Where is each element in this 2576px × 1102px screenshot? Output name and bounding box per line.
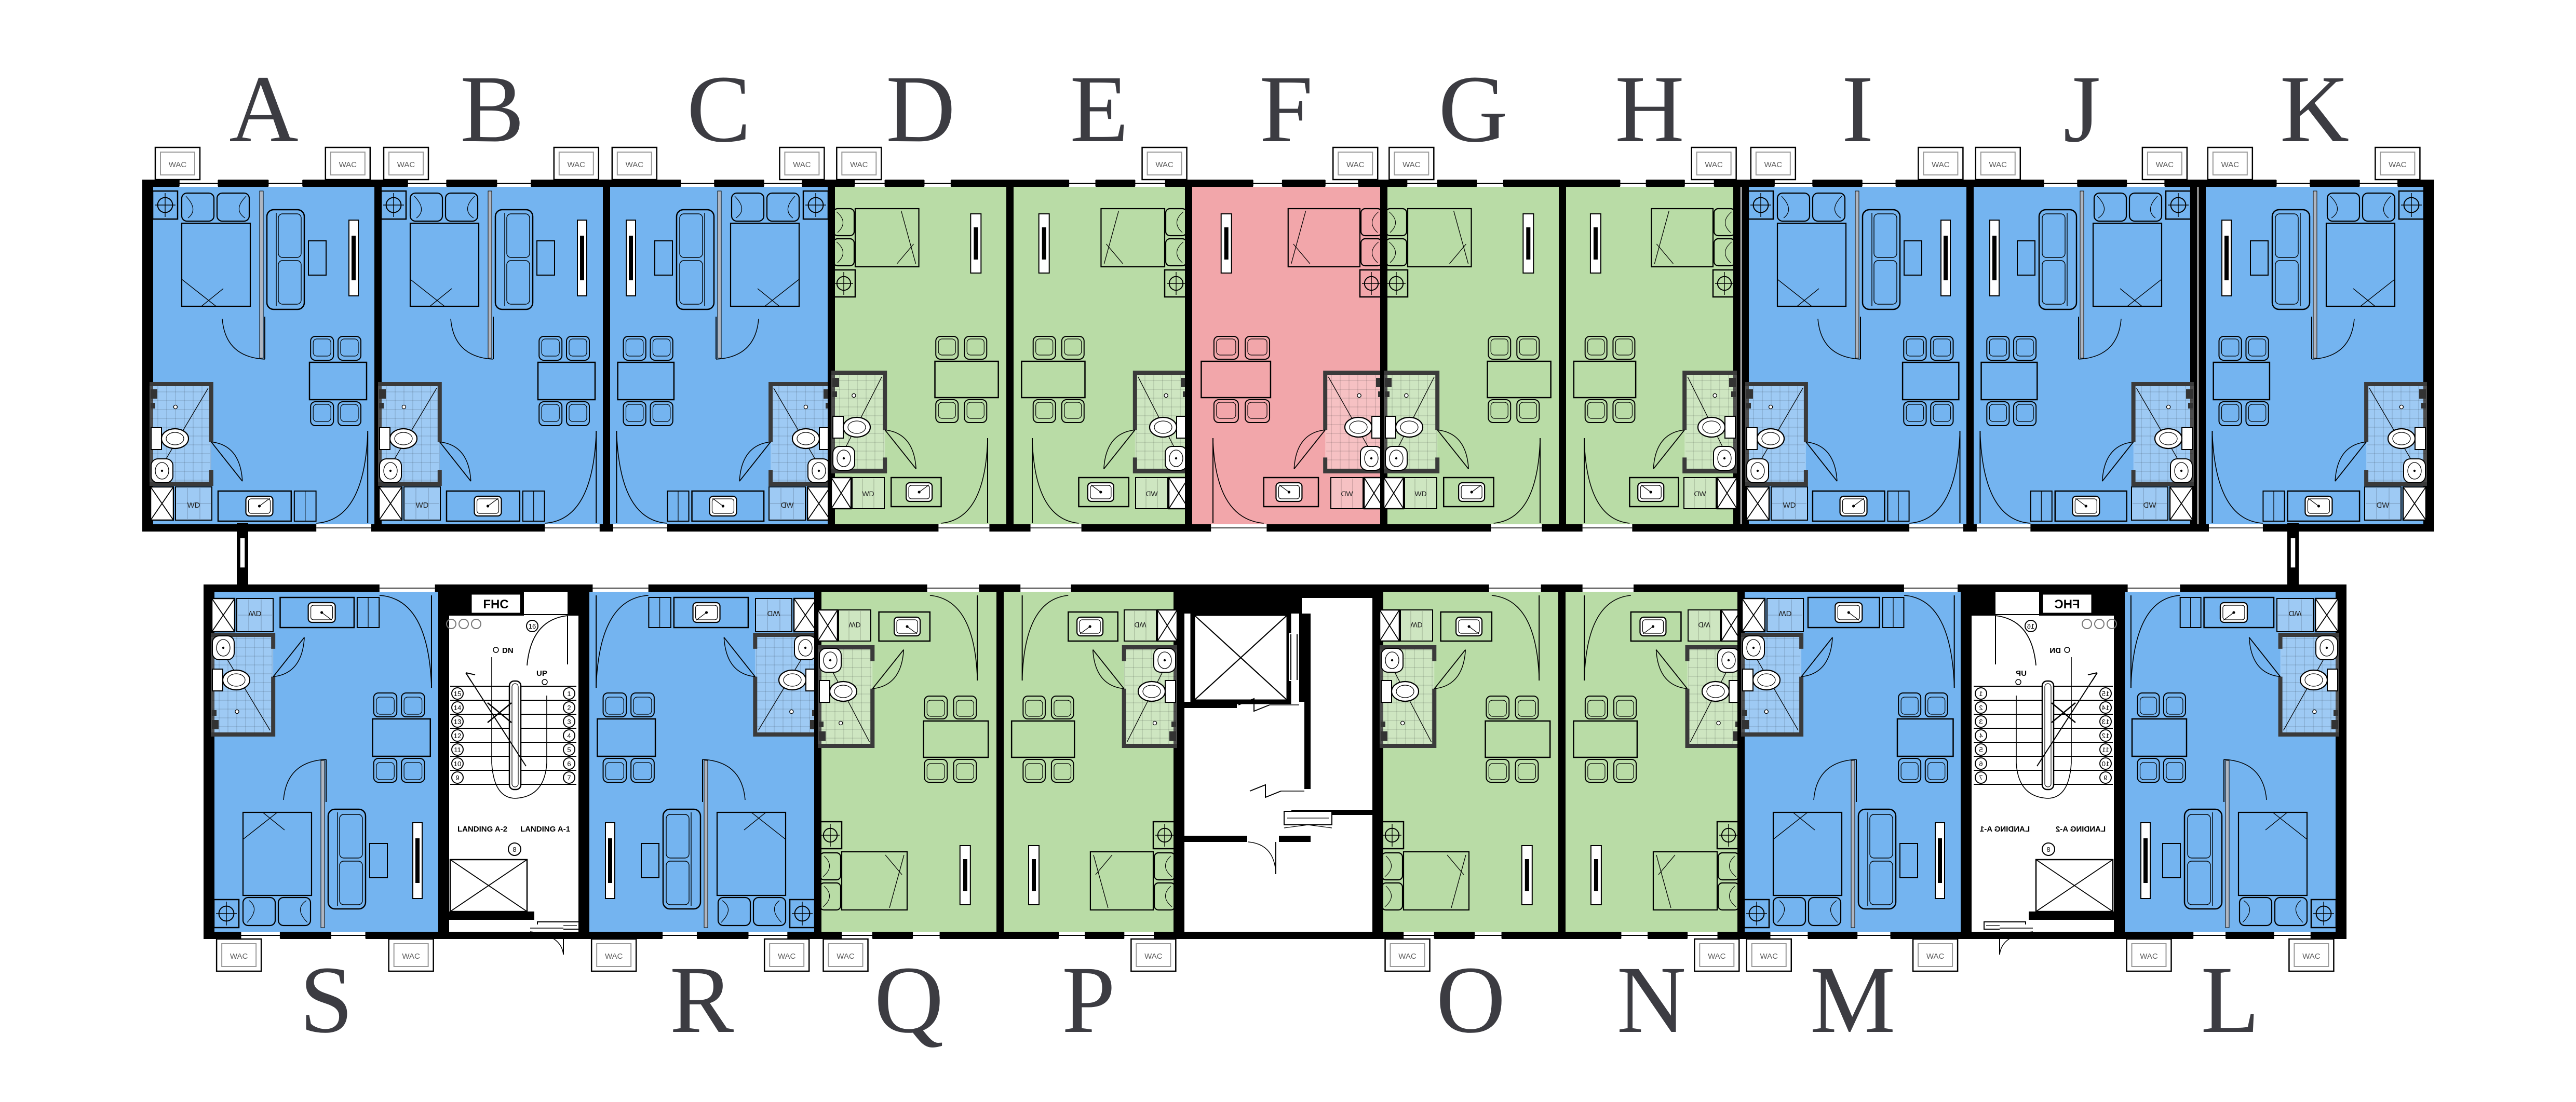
stair-number: 1 [567, 690, 571, 698]
stair-number: 10 [454, 760, 461, 768]
wac-label: WAC [1989, 160, 2007, 169]
stair-number: 7 [567, 774, 571, 782]
wac-box-J: WAC [1976, 147, 2020, 180]
wac-label: WAC [626, 160, 644, 169]
stair-number: 13 [2102, 718, 2109, 726]
unit-letter-P: P [1062, 947, 1115, 1053]
fhc-label: FHC [2054, 597, 2080, 611]
wd-label: WD [1783, 501, 1796, 510]
unit-J: WD [1966, 180, 2197, 532]
wac-label: WAC [2302, 952, 2321, 961]
wac-label: WAC [1144, 952, 1163, 961]
wac-box-G: WAC [1389, 147, 1434, 180]
stair-number: 8 [512, 846, 516, 853]
stair-number: 15 [454, 690, 461, 698]
wac-box-D: WAC [837, 147, 881, 180]
unit-C: WD [603, 180, 835, 532]
wd-label: WD [2143, 501, 2156, 510]
stair-number: 9 [2103, 774, 2107, 782]
fhc-label: FHC [483, 597, 508, 611]
unit-D: WD [828, 180, 1014, 532]
wac-box-B: WAC [384, 147, 428, 180]
floor-plan: WDWDWDWDWDWDWDWDWDWDWDWDWDWDWDWDWDWDWDFH… [0, 0, 2576, 1102]
stair-number: 5 [567, 746, 571, 754]
wd-label: WD [187, 501, 200, 510]
stair-number: 4 [567, 732, 571, 740]
wac-label: WAC [850, 160, 868, 169]
unit-letter-C: C [687, 56, 751, 162]
unit-N: WD [1558, 584, 1745, 939]
wac-label: WAC [837, 952, 855, 961]
wac-label: WAC [2156, 160, 2174, 169]
unit-G: WD [1380, 180, 1566, 532]
wd-label: WD [1134, 621, 1146, 629]
wd-label: WD [1410, 621, 1422, 629]
stair-number: 3 [1979, 718, 1982, 726]
unit-L: WD [2118, 584, 2343, 939]
wac-label: WAC [1926, 952, 1945, 961]
wac-label: WAC [1708, 952, 1726, 961]
unit-Q: WD [814, 584, 1004, 939]
wac-box-K: WAC [2375, 147, 2420, 180]
stair-number: 12 [454, 732, 461, 740]
wac-label: WAC [2389, 160, 2407, 169]
wd-label: WD [2376, 501, 2389, 510]
stair-number: 11 [454, 746, 461, 754]
unit-M: WD [1737, 584, 1968, 939]
stair-number: 8 [2046, 846, 2050, 853]
wac-box-R: WAC [591, 939, 636, 971]
wd-label: WD [1694, 489, 1706, 498]
unit-letter-K: K [2280, 56, 2350, 162]
wac-box-Q: WAC [824, 939, 868, 971]
wac-label: WAC [1760, 952, 1778, 961]
wac-label: WAC [605, 952, 623, 961]
plan-root: WDWDWDWDWDWDWDWDWDWDWDWDWDWDWDWDWDWDWDFH… [142, 56, 2434, 1053]
wac-box-C: WAC [612, 147, 657, 180]
unit-A: WD [146, 180, 382, 532]
stair-number: 3 [567, 718, 571, 726]
wac-box-S: WAC [389, 939, 434, 971]
wac-box-J: WAC [2142, 147, 2187, 180]
unit-letter-M: M [1810, 947, 1896, 1053]
up-label: UP [2016, 669, 2027, 678]
wd-label: WD [249, 609, 262, 618]
wac-label: WAC [402, 952, 420, 961]
stair-number: 4 [1979, 732, 1982, 740]
wac-box-P: WAC [1131, 939, 1176, 971]
wd-label: WD [416, 501, 429, 510]
dn-label: DN [2049, 646, 2061, 655]
wac-label: WAC [1398, 952, 1417, 961]
stair-number: 13 [454, 718, 461, 726]
stair-number: 6 [1979, 760, 1982, 768]
unit-letter-E: E [1070, 56, 1128, 162]
wd-label: WD [1698, 621, 1710, 629]
unit-letter-L: L [2201, 947, 2259, 1053]
wac-box-I: WAC [1751, 147, 1796, 180]
wac-box-A: WAC [326, 147, 370, 180]
dn-label: DN [502, 646, 514, 655]
stair-number: 9 [455, 774, 459, 782]
wac-label: WAC [339, 160, 357, 169]
wac-label: WAC [1932, 160, 1950, 169]
unit-letter-B: B [460, 56, 524, 162]
wac-box-M: WAC [1747, 939, 1791, 971]
wac-box-L: WAC [2289, 939, 2334, 971]
wac-label: WAC [397, 160, 415, 169]
wac-box-F: WAC [1333, 147, 1378, 180]
unit-letter-R: R [670, 947, 734, 1053]
wac-box-K: WAC [2208, 147, 2253, 180]
wac-label: WAC [2140, 952, 2158, 961]
wac-box-R: WAC [764, 939, 809, 971]
wac-label: WAC [568, 160, 586, 169]
wac-box-N: WAC [1694, 939, 1739, 971]
landing-label: LANDING A-1 [520, 825, 570, 834]
unit-letter-I: I [1842, 56, 1874, 162]
unit-R: WD [582, 584, 821, 939]
unit-letter-H: H [1615, 56, 1684, 162]
unit-K: WD [2199, 180, 2431, 532]
wac-label: WAC [1155, 160, 1174, 169]
wac-box-S: WAC [217, 939, 261, 971]
up-label: UP [536, 669, 547, 678]
unit-letter-G: G [1438, 56, 1508, 162]
stair-number: 2 [567, 704, 571, 712]
wac-label: WAC [778, 952, 796, 961]
wd-label: WD [862, 489, 874, 498]
wac-box-E: WAC [1142, 147, 1187, 180]
wac-box-L: WAC [2127, 939, 2172, 971]
wd-label: WD [767, 609, 780, 618]
wac-box-A: WAC [155, 147, 200, 180]
stair-number: 1 [1979, 690, 1982, 698]
wac-box-I: WAC [1918, 147, 1963, 180]
row-connector-right [2287, 523, 2299, 588]
wac-box-O: WAC [1385, 939, 1430, 971]
wd-label: WD [780, 501, 793, 510]
wac-label: WAC [793, 160, 811, 169]
unit-letter-S: S [300, 947, 353, 1053]
stair-number: 7 [1979, 774, 1982, 782]
wac-label: WAC [1764, 160, 1783, 169]
wac-box-H: WAC [1692, 147, 1736, 180]
wac-label: WAC [1705, 160, 1723, 169]
wac-label: WAC [1346, 160, 1365, 169]
stair-number: 16 [529, 622, 536, 630]
landing-label: LANDING A-2 [457, 825, 507, 834]
stair-number: 14 [2102, 704, 2109, 712]
landing-label: LANDING A-1 [1980, 825, 2030, 834]
unit-H: WD [1559, 180, 1741, 532]
unit-S: WD [207, 584, 446, 939]
wd-label: WD [1341, 489, 1353, 498]
wac-label: WAC [230, 952, 248, 961]
floor-plan-canvas: WDWDWDWDWDWDWDWDWDWDWDWDWDWDWDWDWDWDWDFH… [0, 0, 2576, 1102]
elevator-core [1177, 592, 1380, 932]
stair-number: 6 [567, 760, 571, 768]
unit-B: WD [374, 180, 610, 532]
unit-letter-N: N [1617, 947, 1687, 1053]
unit-letter-A: A [229, 56, 299, 162]
wac-box-C: WAC [779, 147, 824, 180]
stair-number: 11 [2102, 746, 2109, 754]
stair-number: 16 [2027, 622, 2034, 630]
wd-label: WD [848, 621, 860, 629]
unit-P: WD [996, 584, 1181, 939]
stair-core-right: FHCDNUP1514131211109123456716LANDING A-2… [1964, 592, 2121, 955]
stair-number: 14 [454, 704, 461, 712]
stair-number: 5 [1979, 746, 1982, 754]
stair-number: 12 [2102, 732, 2109, 740]
stair-number: 15 [2102, 690, 2109, 698]
stair-core-left: FHCDNUP1514131211109123456716LANDING A-2… [442, 592, 586, 955]
wd-label: WD [2288, 609, 2301, 618]
unit-letter-D: D [886, 56, 955, 162]
stair-number: 2 [1979, 704, 1982, 712]
landing-label: LANDING A-2 [2056, 825, 2106, 834]
wac-label: WAC [1402, 160, 1421, 169]
wd-label: WD [1145, 489, 1157, 498]
unit-letter-J: J [2064, 56, 2101, 162]
unit-letter-O: O [1436, 947, 1506, 1053]
unit-F: WD [1185, 180, 1387, 532]
wac-label: WAC [2221, 160, 2240, 169]
unit-E: WD [1006, 180, 1192, 532]
unit-I: WD [1742, 180, 1974, 532]
wac-box-B: WAC [554, 147, 599, 180]
unit-letter-F: F [1260, 56, 1313, 162]
unit-letter-Q: Q [874, 947, 944, 1053]
row-connector-left [237, 523, 248, 588]
wd-label: WD [1779, 609, 1792, 618]
wd-label: WD [1414, 489, 1426, 498]
unit-O: WD [1376, 584, 1566, 939]
stair-number: 10 [2102, 760, 2109, 768]
wac-box-M: WAC [1913, 939, 1958, 971]
wac-label: WAC [169, 160, 187, 169]
